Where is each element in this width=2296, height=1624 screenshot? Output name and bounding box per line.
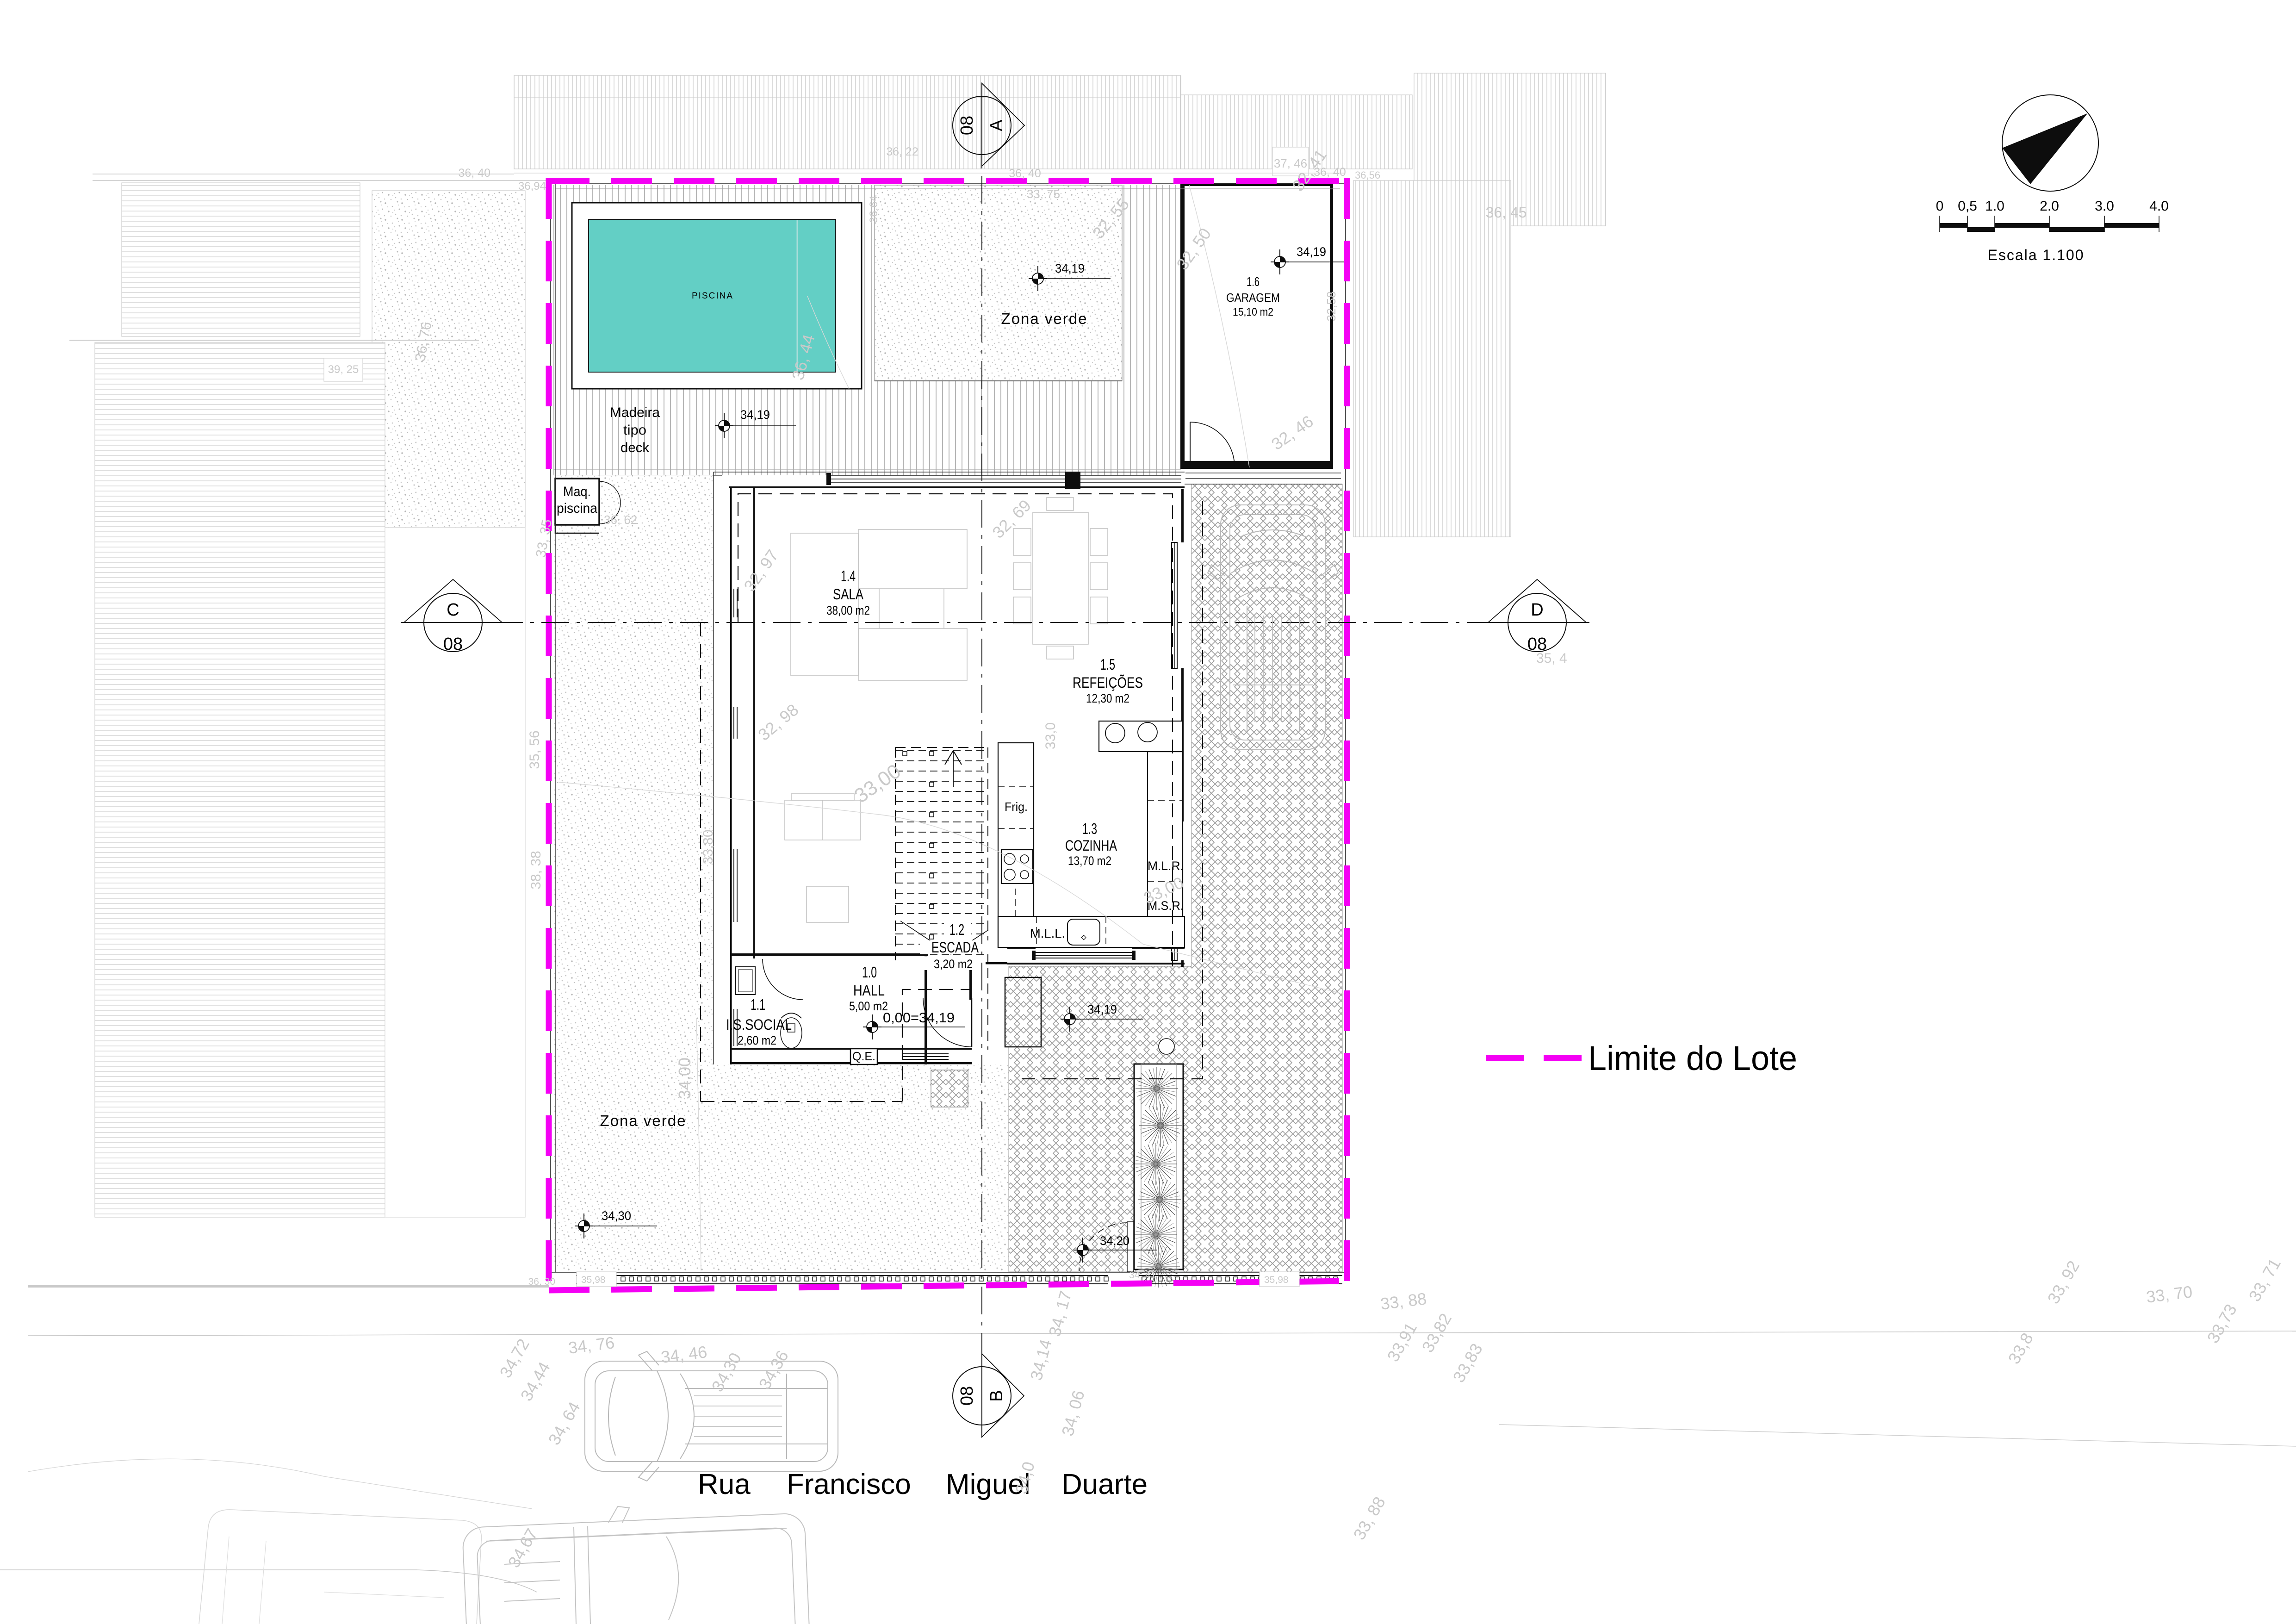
svg-text:Maq.: Maq. — [563, 484, 591, 499]
svg-text:deck: deck — [621, 440, 650, 455]
svg-text:08: 08 — [443, 635, 463, 654]
svg-text:1.4: 1.4 — [841, 567, 856, 585]
svg-text:1.0: 1.0 — [862, 964, 877, 981]
svg-text:piscina: piscina — [557, 501, 597, 516]
svg-text:36, 40: 36, 40 — [1009, 167, 1041, 180]
svg-text:Madeira: Madeira — [610, 405, 660, 420]
svg-text:Zona verde: Zona verde — [600, 1112, 687, 1129]
svg-text:36, 30: 36, 30 — [528, 1276, 555, 1287]
svg-text:34,00: 34,00 — [675, 1058, 694, 1099]
svg-text:32,58: 32,58 — [1324, 291, 1338, 321]
svg-text:36, 45: 36, 45 — [1486, 204, 1527, 221]
svg-text:M.L.R.: M.L.R. — [1148, 859, 1184, 873]
svg-text:34,30: 34,30 — [602, 1209, 631, 1223]
svg-text:3,20 m2: 3,20 m2 — [934, 957, 973, 971]
svg-text:34,19: 34,19 — [740, 408, 770, 422]
svg-text:0,5: 0,5 — [1958, 199, 1977, 214]
svg-text:REFEIÇÕES: REFEIÇÕES — [1073, 674, 1143, 691]
svg-text:Rua: Rua — [698, 1468, 751, 1500]
svg-text:2,60 m2: 2,60 m2 — [738, 1033, 776, 1047]
svg-text:A: A — [987, 119, 1006, 131]
svg-text:12,30 m2: 12,30 m2 — [1086, 691, 1129, 705]
svg-text:Frig.: Frig. — [1005, 800, 1028, 814]
svg-text:2.0: 2.0 — [2040, 199, 2059, 214]
svg-text:0,00=34,19: 0,00=34,19 — [883, 1010, 955, 1026]
svg-text:08: 08 — [957, 116, 977, 135]
svg-text:36, 62: 36, 62 — [604, 513, 637, 527]
svg-text:4.0: 4.0 — [2149, 199, 2169, 214]
svg-text:33,0: 33,0 — [1043, 722, 1058, 749]
svg-text:ESCADA: ESCADA — [931, 939, 979, 956]
svg-text:13,70 m2: 13,70 m2 — [1068, 854, 1111, 868]
svg-text:5,00 m2: 5,00 m2 — [849, 999, 888, 1013]
svg-text:1.6: 1.6 — [1247, 274, 1260, 289]
svg-text:COZINHA: COZINHA — [1065, 837, 1117, 854]
svg-text:Zona verde: Zona verde — [1001, 310, 1088, 327]
svg-text:Escala 1.100: Escala 1.100 — [1987, 247, 2084, 263]
svg-text:1.2: 1.2 — [949, 921, 964, 938]
svg-text:35, 56: 35, 56 — [527, 730, 542, 769]
svg-text:3.0: 3.0 — [2095, 199, 2114, 214]
svg-text:Limite do Lote: Limite do Lote — [1588, 1039, 1797, 1077]
svg-text:33, 75: 33, 75 — [1027, 187, 1060, 201]
svg-text:I.S.SOCIAL: I.S.SOCIAL — [726, 1016, 792, 1033]
svg-text:SALA: SALA — [833, 586, 864, 603]
svg-text:38, 38: 38, 38 — [528, 851, 544, 889]
svg-text:35,98: 35,98 — [581, 1275, 606, 1285]
svg-text:36, 22: 36, 22 — [886, 145, 918, 158]
svg-text:33,80: 33,80 — [701, 829, 716, 864]
svg-text:34,19: 34,19 — [1087, 1002, 1117, 1016]
svg-text:C: C — [447, 600, 459, 620]
svg-text:0: 0 — [1936, 199, 1944, 214]
svg-text:39, 25: 39, 25 — [328, 363, 359, 376]
svg-text:34, 41: 34, 41 — [1129, 1270, 1156, 1281]
svg-text:34,19: 34,19 — [1055, 261, 1085, 275]
svg-text:PISCINA: PISCINA — [692, 291, 733, 301]
svg-text:36, 40: 36, 40 — [458, 167, 490, 180]
svg-text:34,19: 34,19 — [1297, 245, 1326, 259]
svg-text:38,00 m2: 38,00 m2 — [826, 604, 870, 617]
svg-text:36,56: 36,56 — [1355, 169, 1380, 181]
svg-text:M.L.L.: M.L.L. — [1030, 927, 1065, 940]
svg-text:D: D — [1531, 600, 1543, 620]
svg-text:Q.E.: Q.E. — [852, 1049, 875, 1063]
svg-text:35,98: 35,98 — [1264, 1275, 1289, 1285]
svg-text:B: B — [987, 1390, 1006, 1401]
svg-text:1.3: 1.3 — [1082, 820, 1097, 837]
svg-text:Francisco: Francisco — [787, 1468, 911, 1500]
svg-text:34,20: 34,20 — [1100, 1234, 1129, 1248]
svg-text:Duarte: Duarte — [1061, 1468, 1148, 1500]
svg-text:HALL: HALL — [853, 982, 885, 999]
svg-text:08: 08 — [957, 1386, 977, 1406]
svg-text:GARAGEM: GARAGEM — [1226, 291, 1280, 305]
svg-text:36,94: 36,94 — [518, 180, 546, 193]
svg-text:tipo: tipo — [623, 423, 646, 438]
svg-text:35, 4: 35, 4 — [1536, 651, 1567, 666]
svg-text:1.1: 1.1 — [751, 996, 765, 1013]
svg-text:1.5: 1.5 — [1100, 656, 1115, 673]
svg-text:36,64: 36,64 — [868, 195, 880, 223]
svg-text:15,10 m2: 15,10 m2 — [1233, 306, 1273, 318]
svg-text:1.0: 1.0 — [1985, 199, 2004, 214]
